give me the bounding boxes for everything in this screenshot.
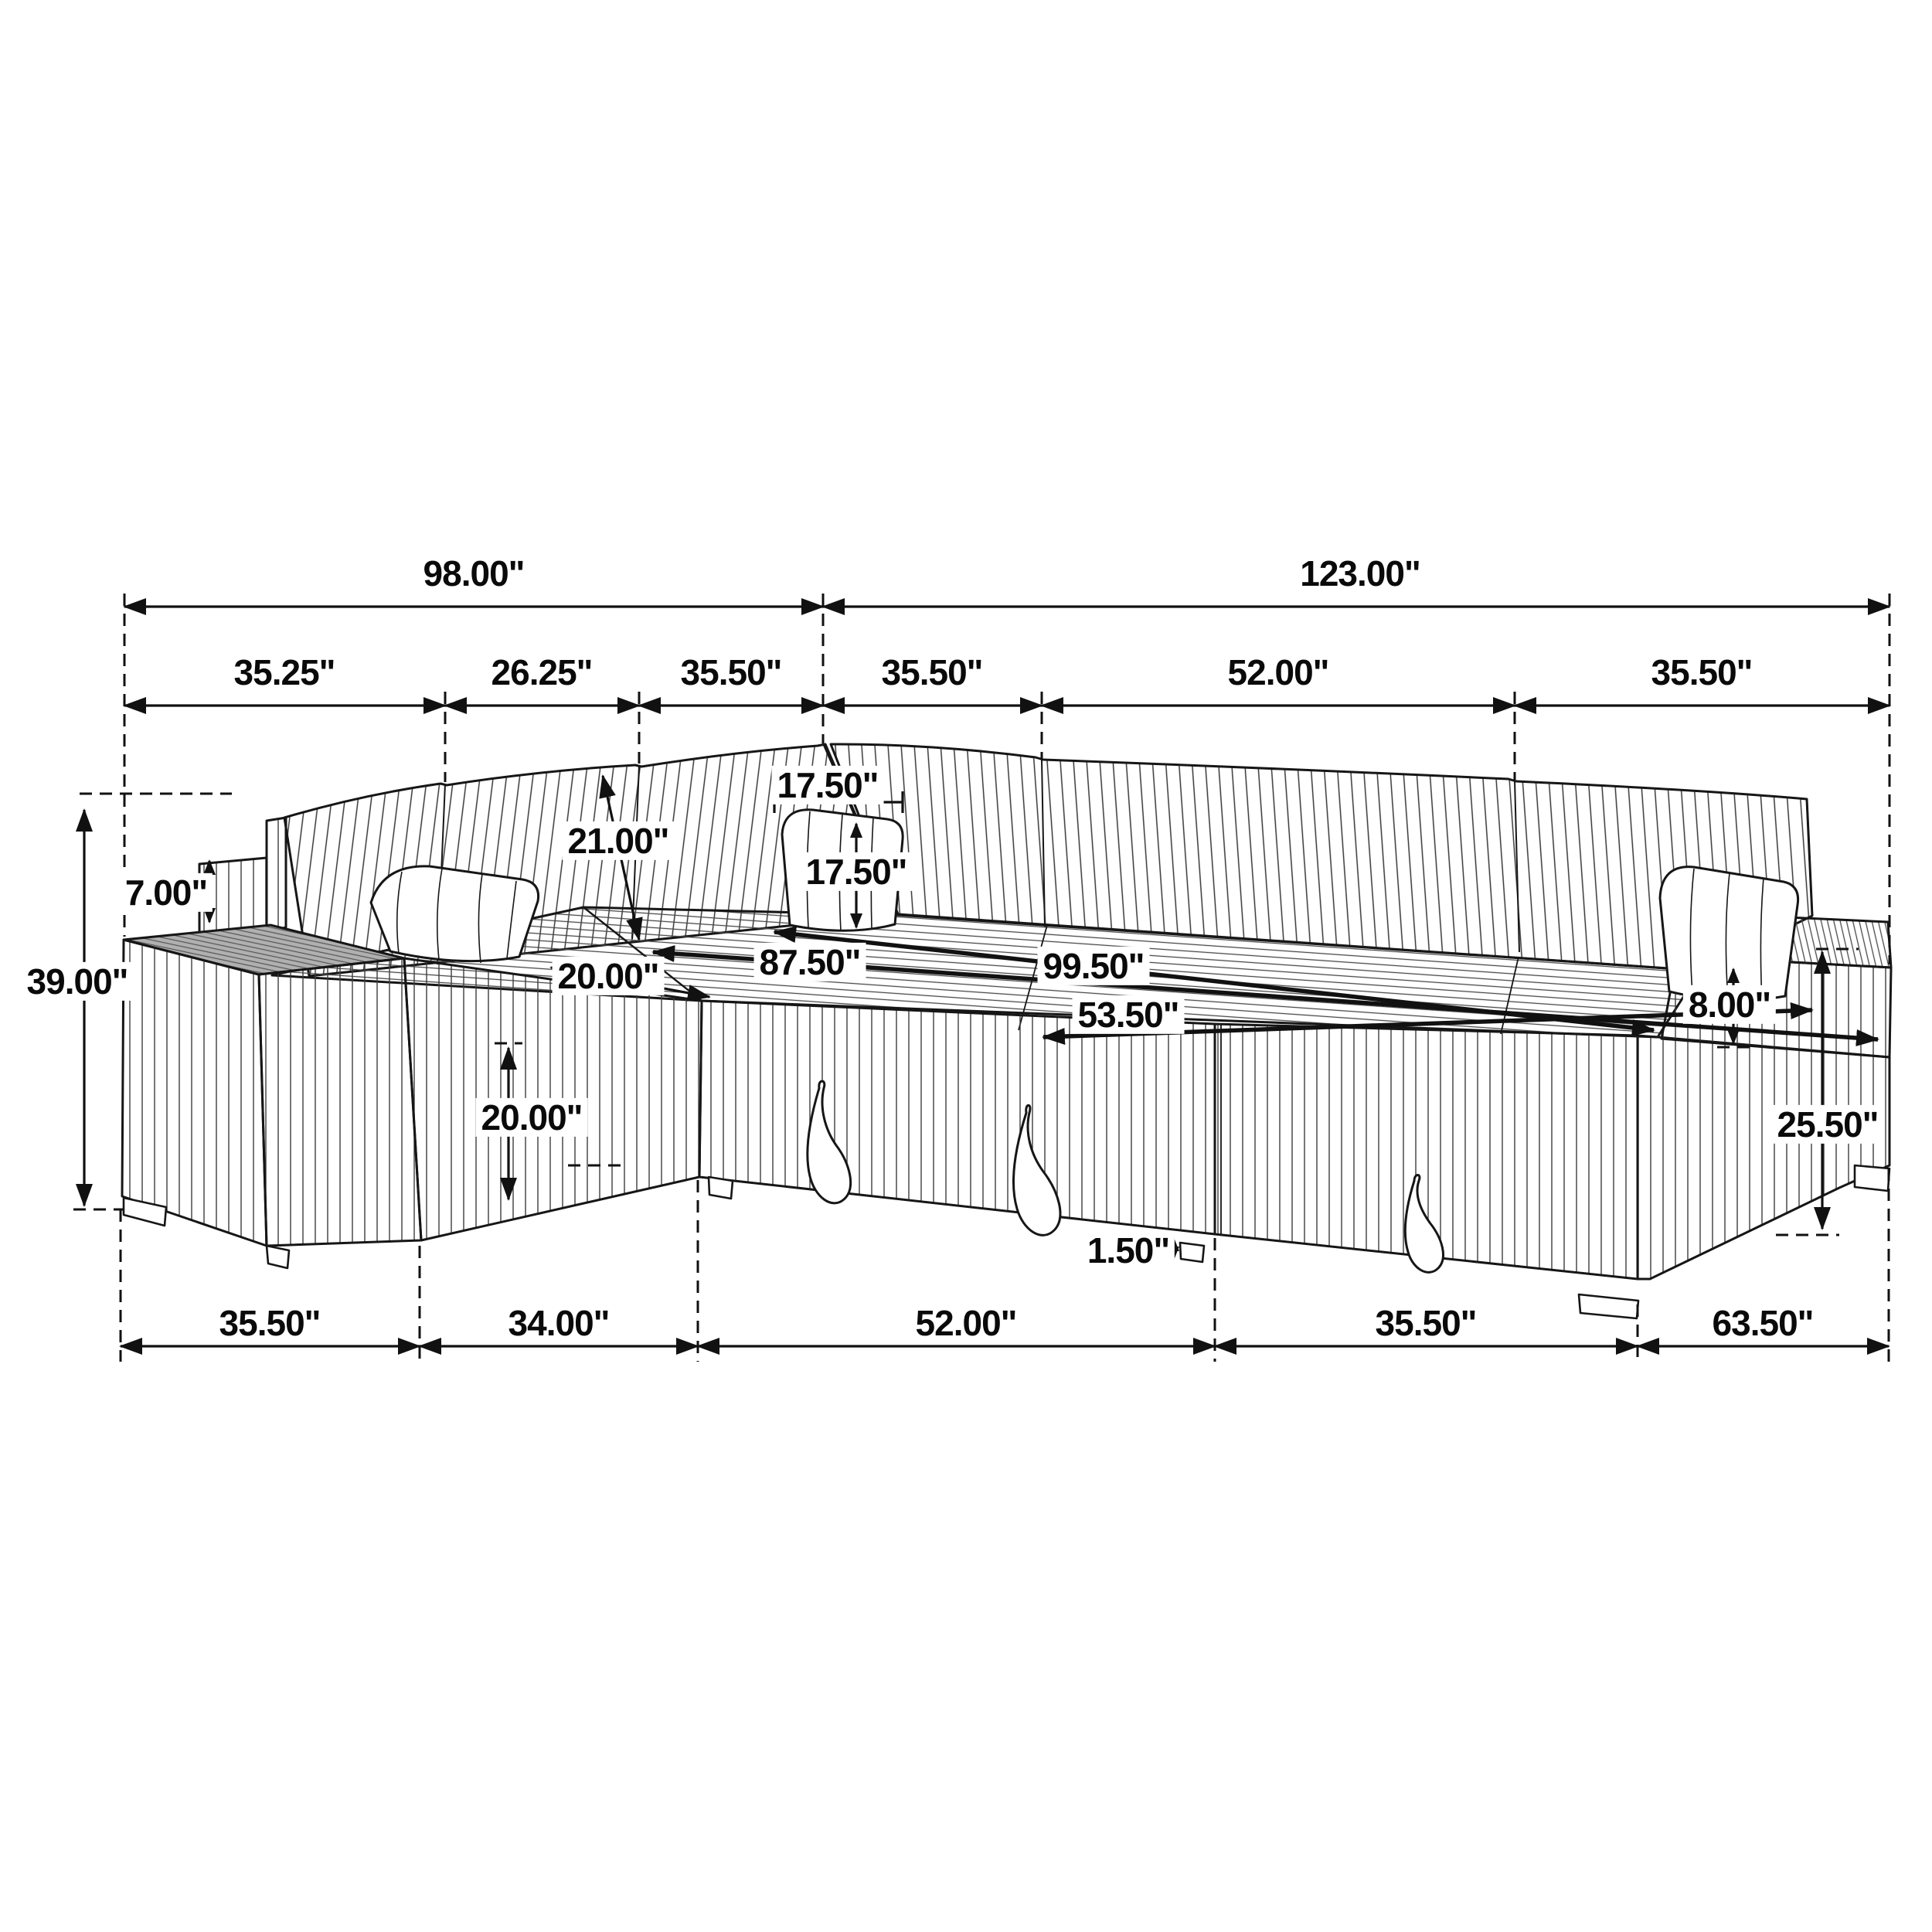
dim-label-3550-b: 35.50" [876,653,988,692]
dim-label-800: 8.00" [1683,985,1776,1024]
sofa-line-drawing [0,0,1932,1932]
dim-label-700: 7.00" [120,873,213,912]
dim-label-3400: 34.00" [503,1304,615,1342]
dim-label-123: 123.00" [1294,554,1426,593]
dim-label-98: 98.00" [418,554,530,593]
dim-label-5350: 53.50" [1073,995,1185,1034]
dim-label-150: 1.50" [1082,1231,1175,1270]
dim-label-1750-a: 17.50" [772,766,884,804]
dim-label-3550-c: 35.50" [1646,653,1758,692]
dim-label-9950: 99.50" [1038,947,1150,985]
dim-label-8750: 87.50" [754,943,866,981]
dim-label-5200-b: 52.00" [910,1304,1022,1342]
dimension-diagram: 98.00" 123.00" 35.25" 26.25" 35.50" 35.5… [0,0,1932,1932]
dim-label-3525: 35.25" [229,653,341,692]
dim-label-2625: 26.25" [486,653,598,692]
sofa-body [122,744,1891,1318]
dim-label-3550-d: 35.50" [214,1304,326,1342]
dim-label-3550-a: 35.50" [675,653,787,692]
dim-label-2550: 25.50" [1772,1105,1884,1144]
dim-label-5200-a: 52.00" [1223,653,1335,692]
dim-label-6350: 63.50" [1707,1304,1819,1342]
right-pillow [1660,867,1798,1002]
dim-label-3550-e: 35.50" [1370,1304,1482,1342]
dim-label-2000-vert: 20.00" [476,1098,588,1137]
dim-label-2100: 21.00" [563,821,675,860]
dim-label-1750-b: 17.50" [801,852,913,891]
dim-label-2000-diag: 20.00" [553,957,665,995]
dim-label-3900: 39.00" [22,962,134,1001]
left-pillow [371,866,539,963]
